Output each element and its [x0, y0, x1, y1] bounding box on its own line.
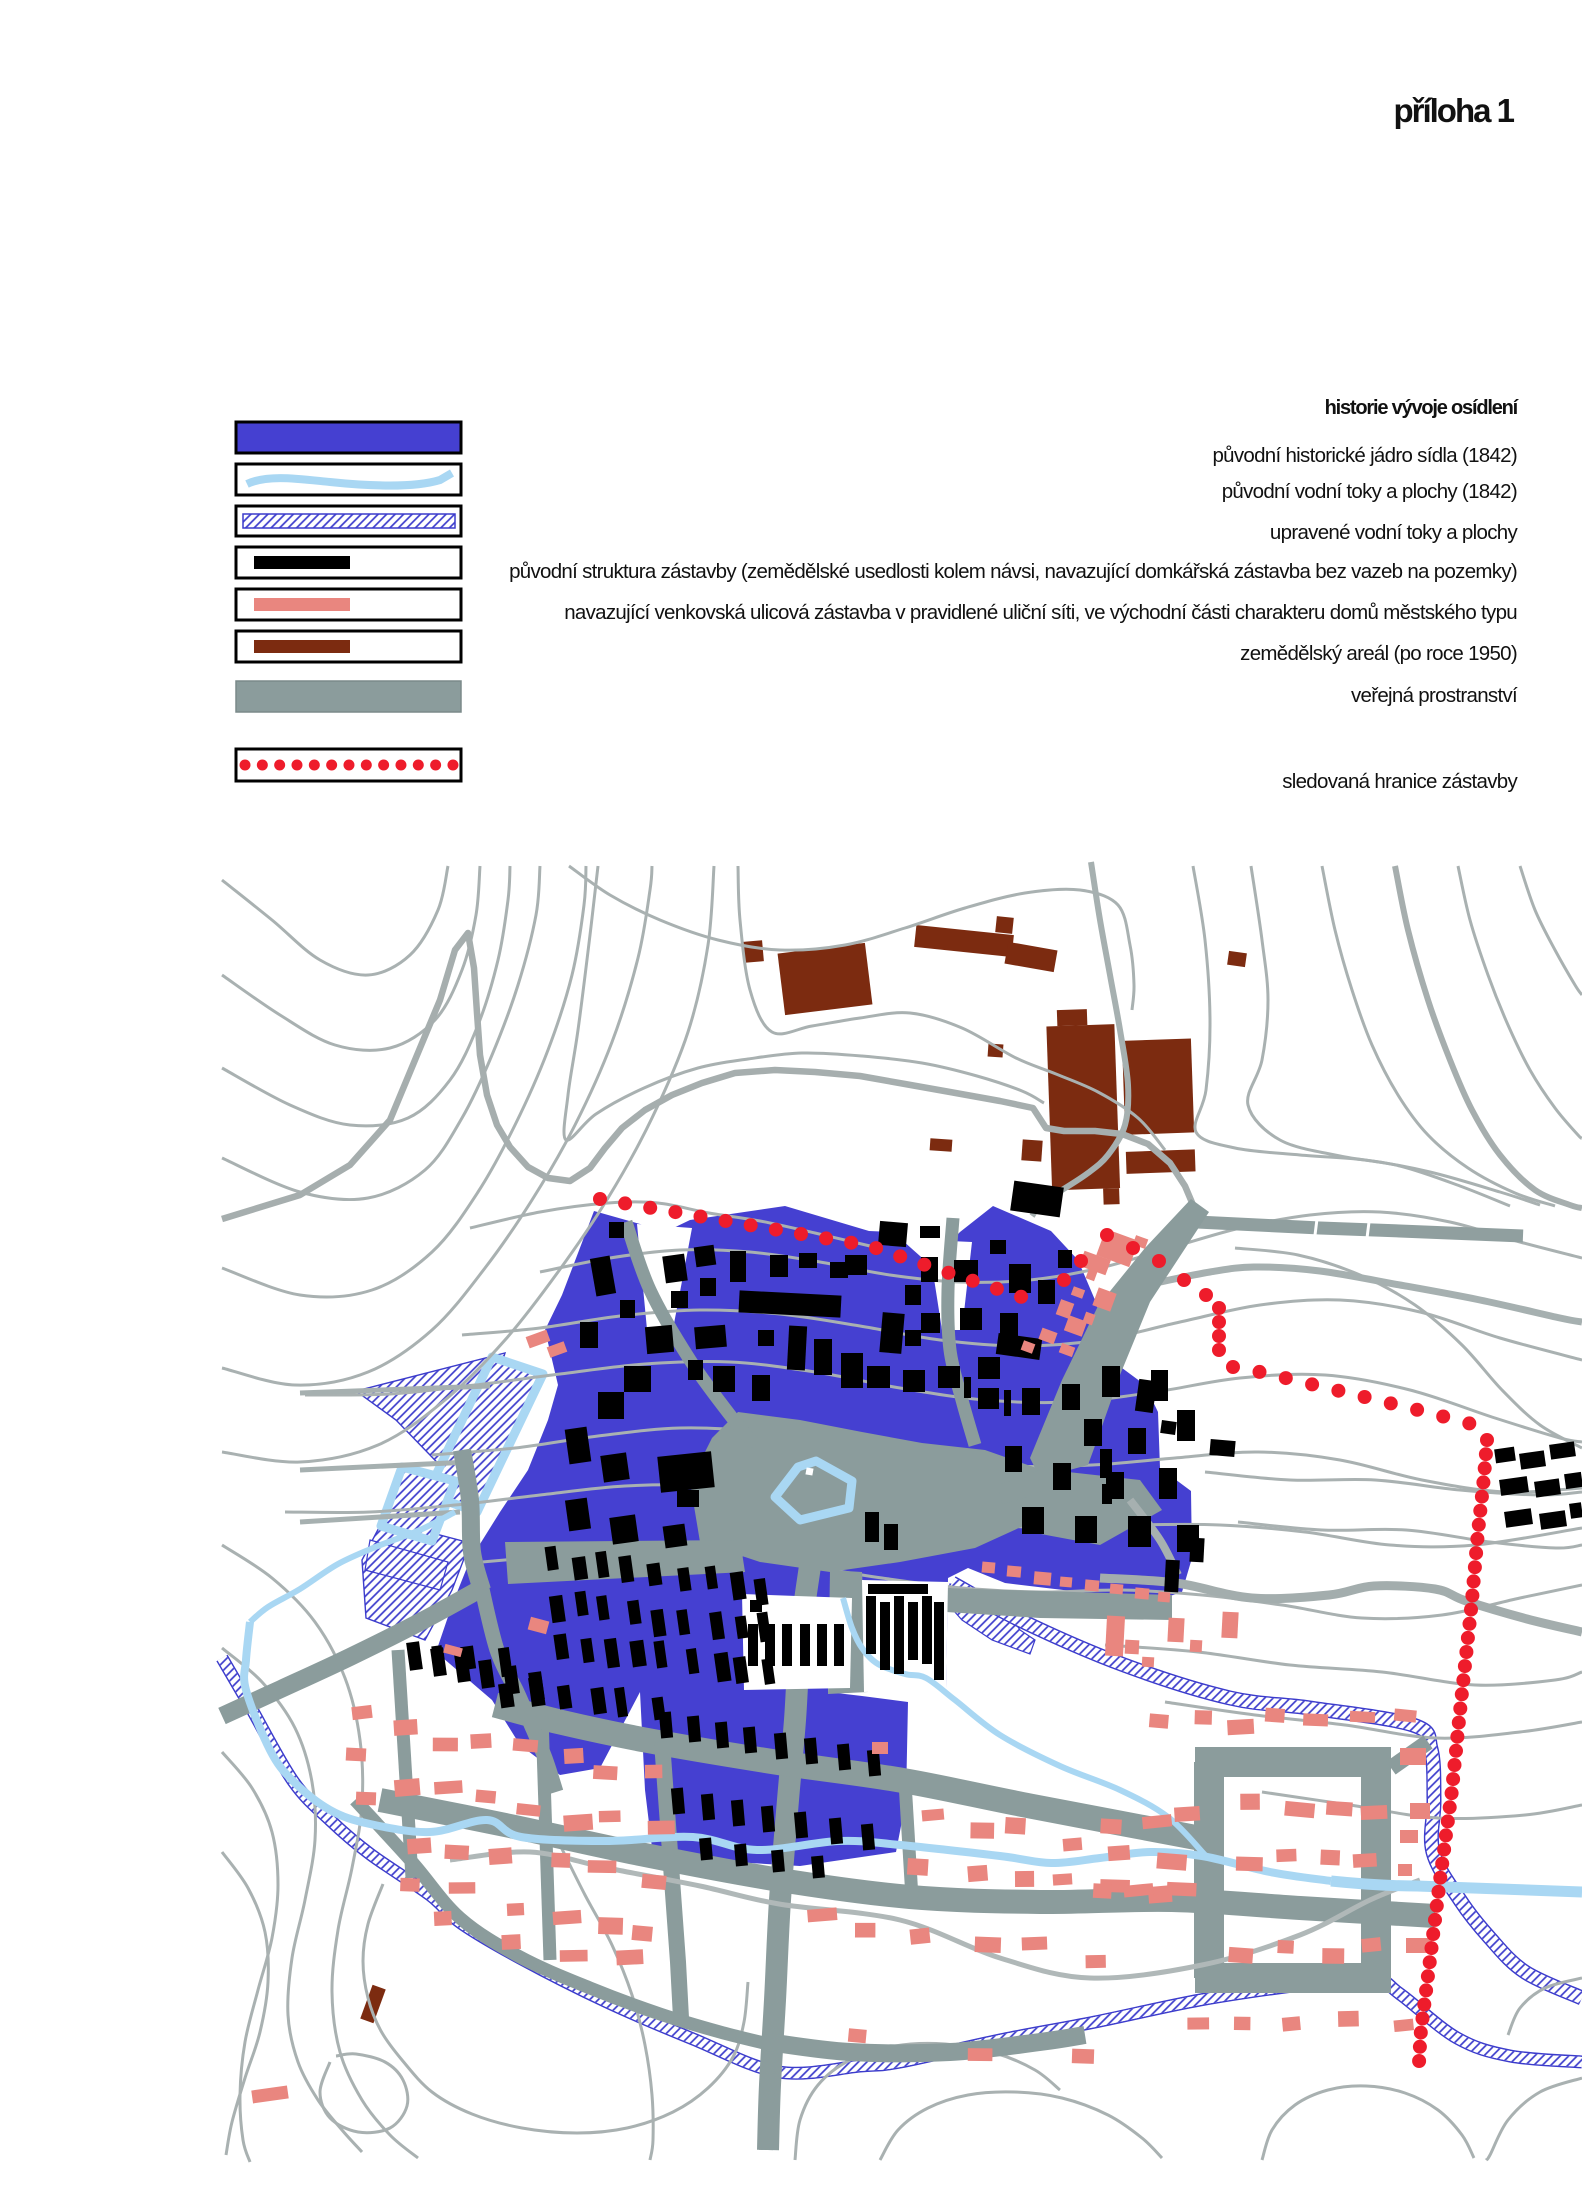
svg-text:historie vývoje osídlení: historie vývoje osídlení — [1325, 397, 1520, 419]
svg-text:původní struktura zástavby (ze: původní struktura zástavby (zemědělské u… — [509, 560, 1517, 583]
svg-text:původní vodní toky a plochy (1: původní vodní toky a plochy (1842) — [1222, 480, 1517, 503]
svg-text:původní historické jádro sídla: původní historické jádro sídla (1842) — [1212, 444, 1517, 467]
svg-text:příloha 1: příloha 1 — [1393, 92, 1514, 129]
svg-text:zemědělský areál (po roce 1950: zemědělský areál (po roce 1950) — [1240, 642, 1517, 665]
svg-text:navazující venkovská ulicová z: navazující venkovská ulicová zástavba v … — [564, 601, 1517, 624]
svg-text:upravené vodní toky a plochy: upravené vodní toky a plochy — [1270, 521, 1519, 544]
svg-text:veřejná prostranství: veřejná prostranství — [1351, 684, 1518, 707]
svg-text:sledovaná hranice zástavby: sledovaná hranice zástavby — [1282, 770, 1518, 793]
